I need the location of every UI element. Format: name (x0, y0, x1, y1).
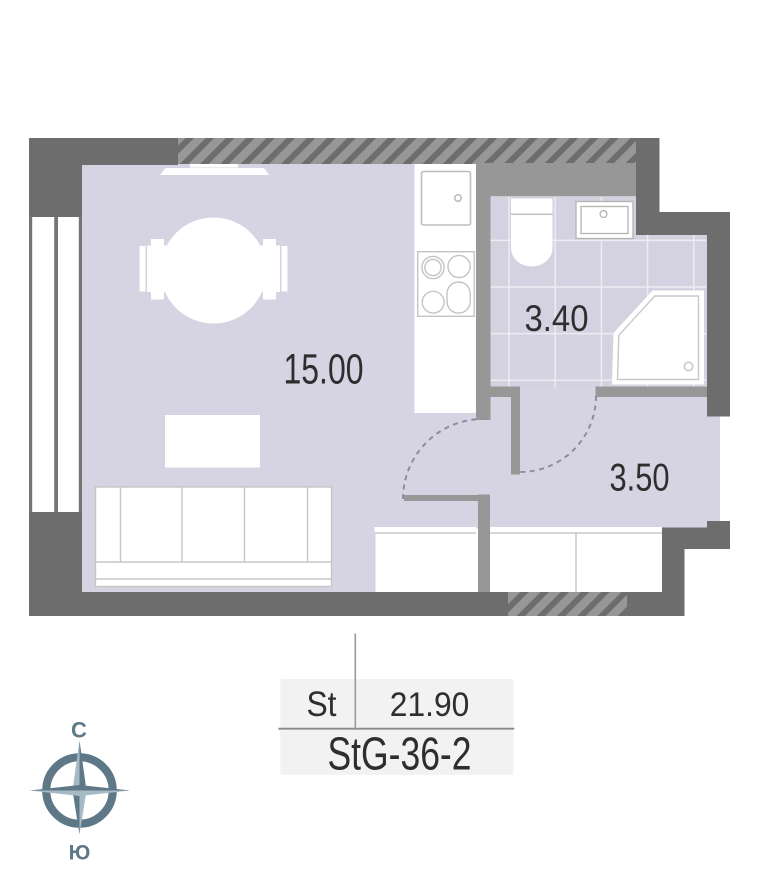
svg-text:Ю: Ю (69, 841, 91, 864)
svg-text:StG-36-2: StG-36-2 (328, 727, 472, 779)
svg-text:St: St (307, 685, 337, 724)
svg-text:3.50: 3.50 (610, 455, 670, 499)
svg-text:С: С (71, 717, 87, 742)
svg-text:3.40: 3.40 (525, 297, 589, 339)
svg-text:21.90: 21.90 (390, 686, 470, 724)
svg-text:15.00: 15.00 (284, 346, 364, 393)
